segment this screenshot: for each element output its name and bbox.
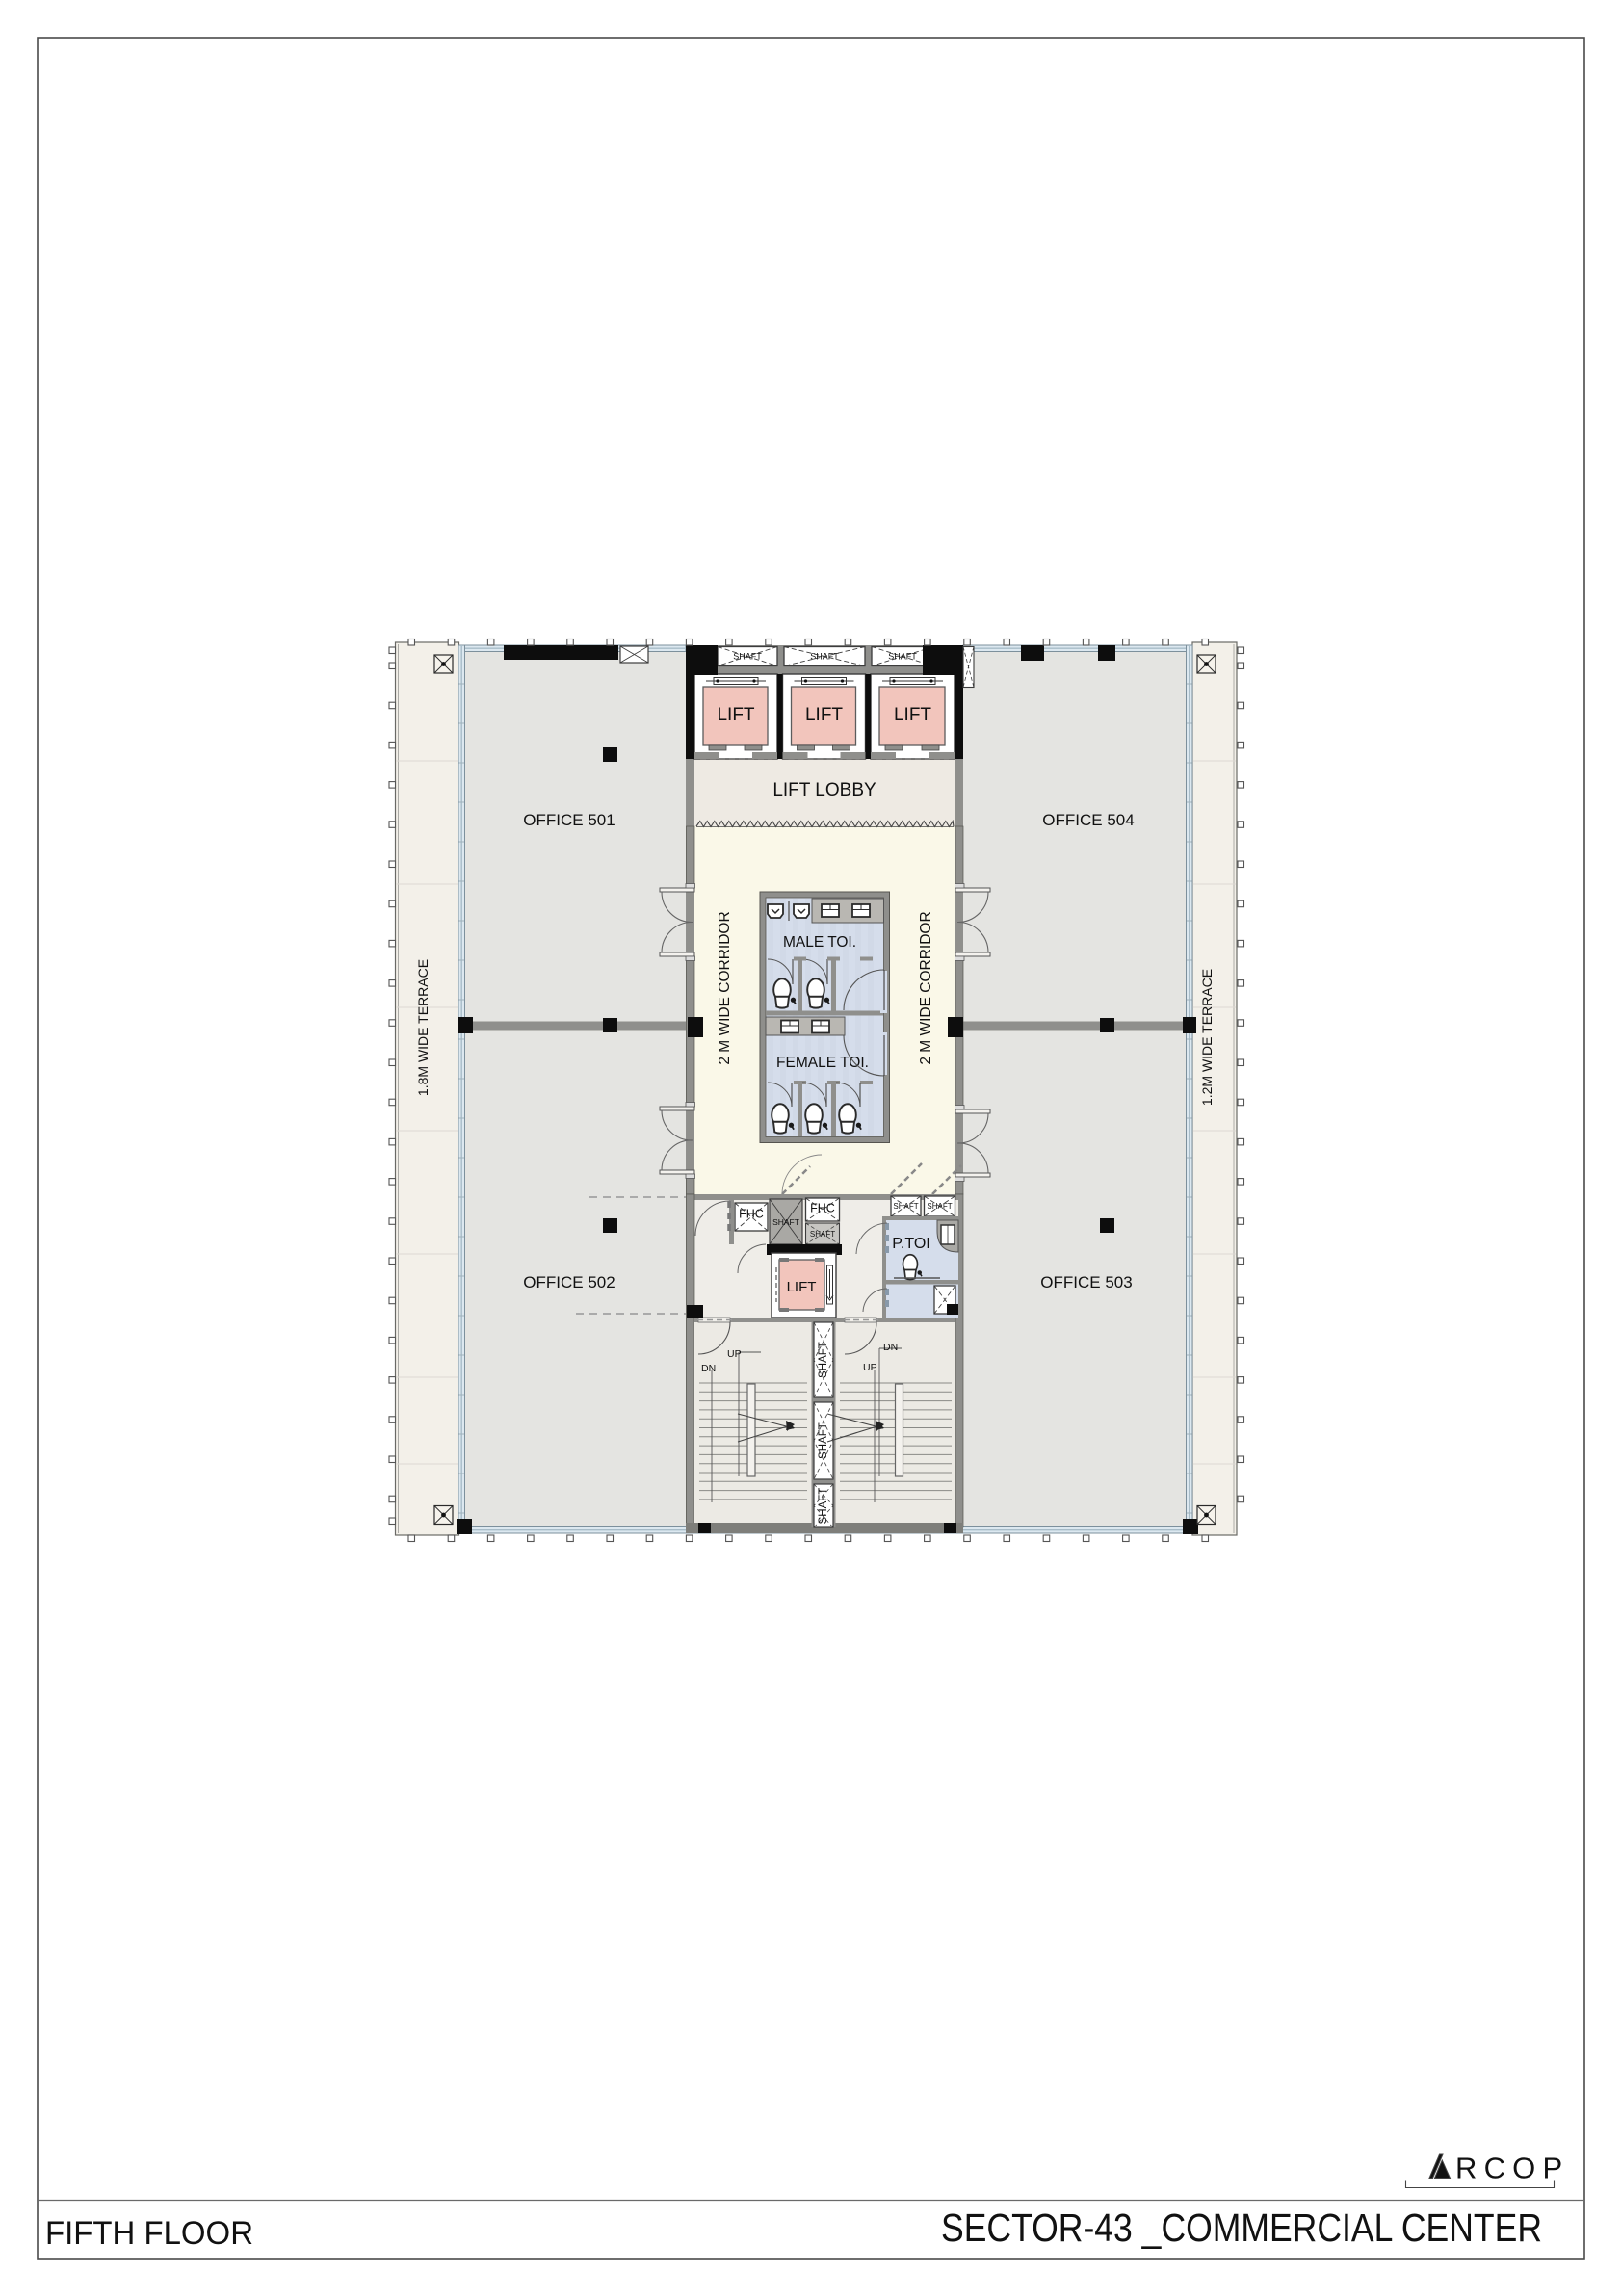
- svg-text:MALE TOI.: MALE TOI.: [783, 934, 856, 951]
- svg-text:FHC: FHC: [810, 1202, 835, 1215]
- svg-text:SHAFT: SHAFT: [818, 1422, 829, 1459]
- svg-text:RCOP: RCOP: [1455, 2152, 1569, 2185]
- svg-text:LIFT: LIFT: [805, 705, 843, 725]
- svg-text:2 M WIDE CORRIDOR: 2 M WIDE CORRIDOR: [717, 911, 733, 1064]
- svg-text:FIFTH FLOOR: FIFTH FLOOR: [45, 2215, 253, 2252]
- svg-text:2 M WIDE CORRIDOR: 2 M WIDE CORRIDOR: [918, 911, 934, 1064]
- svg-text:SHAFT: SHAFT: [927, 1202, 952, 1211]
- svg-text:UP: UP: [727, 1348, 742, 1360]
- svg-text:DN: DN: [883, 1342, 898, 1353]
- svg-text:P.TOI: P.TOI: [892, 1236, 929, 1252]
- svg-text:OFFICE 503: OFFICE 503: [1040, 1273, 1132, 1291]
- svg-text:SECTOR-43 _COMMERCIAL CENTER: SECTOR-43 _COMMERCIAL CENTER: [941, 2205, 1542, 2250]
- svg-text:OFFICE 504: OFFICE 504: [1042, 811, 1134, 829]
- svg-text:SHAFT: SHAFT: [733, 652, 762, 662]
- svg-text:SHAFT: SHAFT: [818, 1342, 829, 1378]
- svg-text:SHAFT: SHAFT: [893, 1202, 918, 1211]
- svg-text:LIFT: LIFT: [894, 705, 931, 725]
- svg-text:SHAFT: SHAFT: [810, 1230, 835, 1239]
- svg-text:SHAFT: SHAFT: [818, 1488, 829, 1525]
- svg-text:LIFT: LIFT: [717, 705, 754, 725]
- svg-text:SHAFT: SHAFT: [772, 1217, 799, 1227]
- svg-text:DN: DN: [701, 1363, 716, 1374]
- svg-text:LIFT LOBBY: LIFT LOBBY: [772, 780, 876, 800]
- svg-text:UP: UP: [863, 1362, 877, 1373]
- svg-text:1.2M WIDE TERRACE: 1.2M WIDE TERRACE: [1199, 969, 1215, 1106]
- svg-text:OFFICE 502: OFFICE 502: [523, 1273, 615, 1291]
- svg-text:1.8M WIDE TERRACE: 1.8M WIDE TERRACE: [415, 959, 431, 1096]
- svg-text:OFFICE 501: OFFICE 501: [523, 811, 615, 829]
- svg-text:LIFT: LIFT: [787, 1279, 817, 1295]
- svg-text:SHAFT: SHAFT: [810, 652, 839, 662]
- svg-text:SHAFT: SHAFT: [888, 652, 917, 662]
- svg-text:FHC: FHC: [739, 1208, 764, 1221]
